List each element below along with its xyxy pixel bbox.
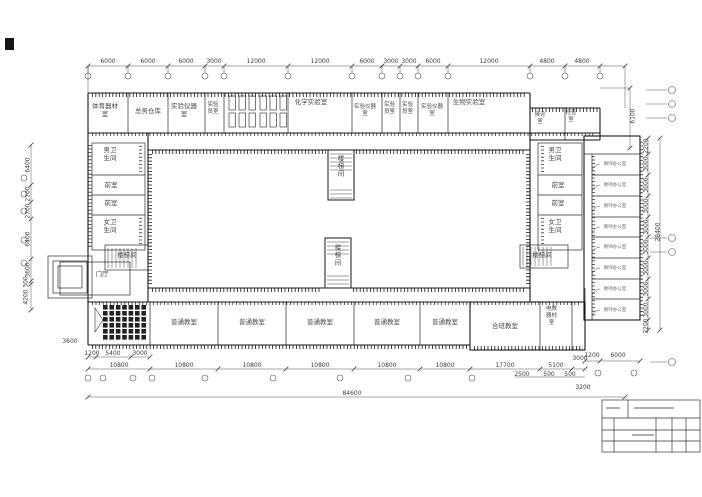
lecture-seats: [103, 305, 146, 340]
dim-right-room-5: 3000: [643, 239, 650, 254]
dim-top-3: 6000: [178, 58, 193, 65]
dim-top-9: 3000: [401, 58, 416, 65]
dim-top-10: 6000: [425, 58, 440, 65]
room-label-exam-room: 检查室: [564, 110, 578, 124]
dim-right-room-3: 3000: [643, 198, 650, 213]
room-label-lab-staff-1: 实验员室: [206, 102, 220, 116]
room-label-mens-toilet-left: 男卫生间: [102, 146, 118, 162]
room-label-anteroom-left-2: 前室: [100, 199, 122, 207]
room-label-classroom-1: 普通教室: [150, 318, 218, 326]
room-label-lab-instruments-3: 实验仪器室: [420, 104, 444, 118]
dim-bay-1: 10800: [109, 362, 128, 369]
dim-left-4: 6400: [25, 231, 32, 246]
dim-sub-4: 3200: [575, 384, 590, 391]
room-label-classroom-4: 普通教室: [354, 318, 420, 326]
title-block-text-smudge: [606, 407, 620, 409]
dim-right-room-2: 3000: [643, 177, 650, 192]
lab-benches: [229, 96, 287, 127]
room-label-teacher-office-1: 教师办公室: [593, 161, 637, 167]
room-label-stair-mid-bottom: 楼梯间: [332, 244, 342, 286]
room-label-teacher-office-7: 教师办公室: [593, 286, 637, 292]
dim-top-2: 6000: [140, 58, 155, 65]
dim-bottom-av: 5100: [548, 362, 563, 369]
room-label-waiting-room: 候诊室: [533, 112, 547, 126]
room-label-chemistry-lab: 化学实验室: [294, 98, 328, 106]
room-label-womens-toilet-right: 女卫生间: [547, 218, 563, 234]
dim-top-11: 12000: [479, 58, 498, 65]
dim-bay-4: 10800: [310, 362, 329, 369]
dim-top-1: 6000: [100, 58, 115, 65]
dim-right-end-bottom: 2200: [643, 318, 650, 333]
dim-top-5: 12000: [246, 58, 265, 65]
room-label-teacher-office-4: 教师办公室: [593, 224, 637, 230]
room-label-teacher-office-2: 教师办公室: [593, 182, 637, 188]
title-block-text-smudge: [632, 434, 654, 436]
room-label-classroom-5: 普通教室: [420, 318, 470, 326]
dim-bottom-right-2: 6000: [610, 352, 625, 359]
dim-bottom-combined: 17700: [495, 362, 514, 369]
dim-bay-5: 10800: [377, 362, 396, 369]
dim-bottom-r1-3: 3000: [132, 350, 147, 357]
dim-left-7: 4200: [23, 289, 30, 304]
room-label-mens-toilet-right: 男卫生间: [547, 146, 563, 162]
room-label-general-storage: 总务仓库: [129, 107, 167, 115]
dim-left-2: 2700: [25, 186, 32, 201]
dim-sub-3: 500: [564, 371, 575, 378]
dim-right-room-1: 3000: [643, 156, 650, 171]
room-label-stair-mid-top: 楼梯间: [335, 155, 345, 197]
dim-right-upper: 6100: [630, 108, 637, 123]
dim-bottom-r1-2: 5400: [105, 350, 120, 357]
room-label-combined-classroom: 合班教室: [470, 322, 540, 330]
sheet-corner-mark: [5, 38, 14, 50]
room-label-lab-staff-2: 实验员室: [383, 102, 396, 116]
room-label-entrance-hall: 门厅: [90, 270, 114, 278]
room-label-teacher-office-3: 教师办公室: [593, 203, 637, 209]
dim-left-3: 2700: [25, 203, 32, 218]
room-label-classroom-3: 普通教室: [286, 318, 354, 326]
dim-bay-2: 10800: [174, 362, 193, 369]
room-label-lab-staff-3: 实验员室: [401, 102, 414, 116]
room-label-av-equipment: 电教器材室: [545, 306, 558, 327]
dim-top-7: 6000: [359, 58, 374, 65]
room-label-stair-right: 楼梯间: [525, 251, 559, 259]
dim-right-room-7: 3000: [643, 281, 650, 296]
dim-left-1: 6400: [25, 157, 32, 172]
dim-bay-6: 10800: [435, 362, 454, 369]
room-label-teacher-office-8: 教师办公室: [593, 307, 637, 313]
title-block-text-smudge: [634, 407, 674, 409]
dim-right-total: 28400: [655, 222, 662, 241]
room-label-lab-instruments-2: 实验仪器室: [353, 104, 377, 118]
dim-top-6: 12000: [310, 58, 329, 65]
dim-right-room-8: 3000: [643, 302, 650, 317]
room-label-sports-equipment: 体育器材室: [90, 102, 120, 118]
room-label-anteroom-right-2: 前室: [548, 199, 568, 207]
dim-top-13: 4800: [574, 58, 589, 65]
room-label-womens-toilet-left: 女卫生间: [102, 218, 118, 234]
dim-top-12: 4800: [539, 58, 554, 65]
room-label-biology-lab: 生物实验室: [452, 98, 486, 106]
dim-right-end-top: 2200: [643, 138, 650, 153]
dim-sub-2: 500: [543, 371, 554, 378]
dim-bottom-r1-1: 1200: [84, 350, 99, 357]
dim-right-room-6: 3000: [643, 260, 650, 275]
room-label-teacher-office-6: 教师办公室: [593, 265, 637, 271]
room-label-anteroom-right-1: 前室: [548, 181, 568, 189]
room-label-lab-instruments-1: 实验仪器室: [170, 102, 198, 118]
dim-bay-3: 10800: [242, 362, 261, 369]
room-label-classroom-2: 普通教室: [218, 318, 286, 326]
room-label-teacher-office-5: 教师办公室: [593, 244, 637, 250]
dim-sub-1: 2500: [514, 371, 529, 378]
dim-top-8: 3000: [383, 58, 398, 65]
dim-total-width: 84600: [342, 390, 361, 397]
dim-right-room-4: 3000: [643, 219, 650, 234]
floor-plan-sheet: 体育器材室 总务仓库 实验仪器室 实验员室 化学实验室 实验仪器室 实验员室 实…: [0, 0, 702, 497]
dim-left-bottom: 3600: [62, 338, 77, 345]
room-label-anteroom-left-1: 前室: [100, 181, 122, 189]
dim-top-4: 3000: [206, 58, 221, 65]
room-label-stair-left: 楼梯间: [110, 251, 144, 259]
dim-bottom-right-1: 1200: [584, 352, 599, 359]
dim-left-6: 300: [23, 276, 30, 287]
